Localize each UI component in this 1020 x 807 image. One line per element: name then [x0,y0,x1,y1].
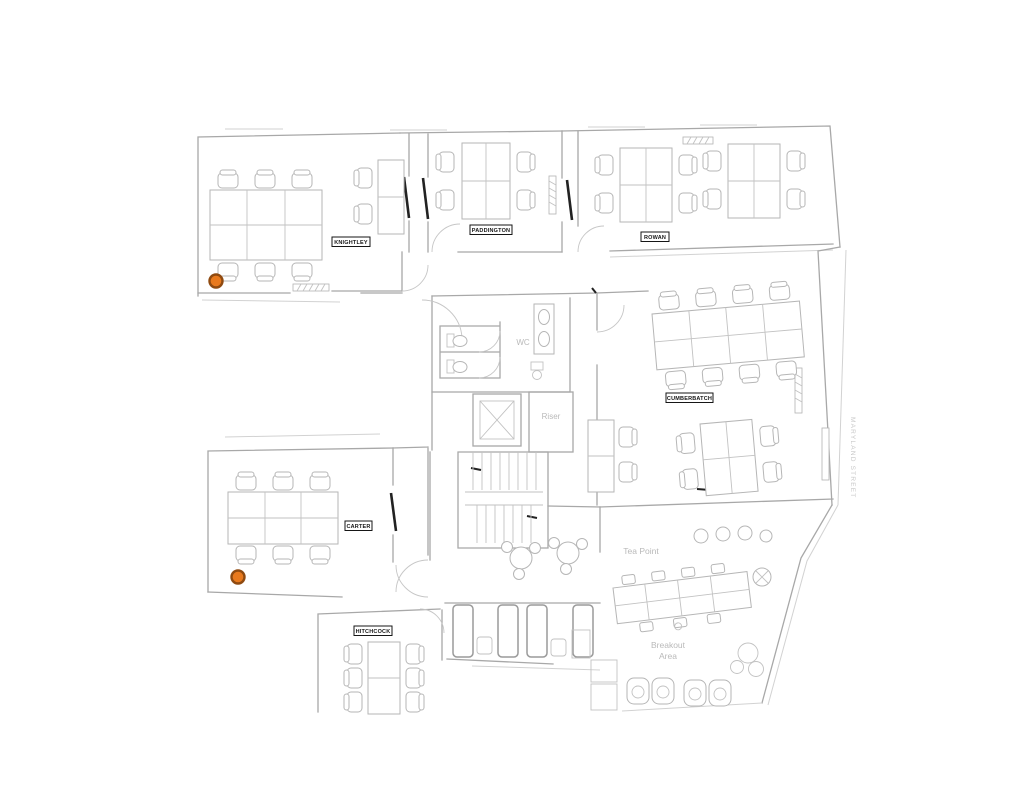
core-riser [529,392,573,452]
column-symbol [753,568,771,586]
svg-text:HITCHCOCK: HITCHCOCK [356,629,391,635]
core-stairs [465,452,543,543]
svg-text:CUMBERBATCH: CUMBERBATCH [667,396,712,402]
room-rowan [595,144,805,222]
room-knightley [210,160,404,281]
room-label-carter: CARTER [345,521,372,531]
room-carter [228,472,338,564]
svg-text:CARTER: CARTER [346,524,370,530]
occupancy-marker-knightley[interactable] [210,275,223,288]
room-label-hitchcock: HITCHCOCK [354,626,392,636]
floorplan-page: KNIGHTLEY PADDINGTON ROWAN CUMBERBATCH C… [0,0,1020,807]
room-label-cumberbatch: CUMBERBATCH [666,393,713,403]
room-label-paddington: PADDINGTON [470,225,512,235]
round-tables [502,538,588,580]
room-label-knightley: KNIGHTLEY [332,237,370,247]
breakout-label-line1: Breakout [651,640,686,650]
svg-text:PADDINGTON: PADDINGTON [472,228,510,234]
occupancy-marker-carter[interactable] [232,571,245,584]
svg-text:ROWAN: ROWAN [644,235,666,241]
plants [731,643,764,677]
tea-point-area [612,526,772,637]
core-lift [473,394,521,446]
tea-point-label: Tea Point [623,546,659,556]
room-paddington [436,143,535,219]
floorplan-canvas: KNIGHTLEY PADDINGTON ROWAN CUMBERBATCH C… [0,0,1020,807]
room-label-rowan: ROWAN [641,232,669,242]
wc-label: WC [516,338,530,347]
svg-text:KNIGHTLEY: KNIGHTLEY [334,240,368,246]
riser-label: Riser [542,412,561,421]
room-hitchcock [344,642,424,714]
street-label: MARYLAND STREET [849,417,856,498]
breakout-label-line2: Area [659,651,677,661]
room-cumberbatch [588,280,806,498]
